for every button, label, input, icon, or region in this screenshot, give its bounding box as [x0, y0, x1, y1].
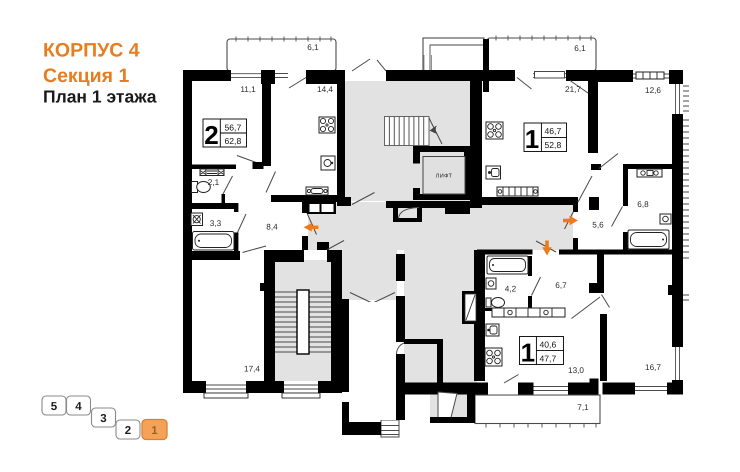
- svg-text:12,6: 12,6: [645, 86, 661, 95]
- svg-text:46,7: 46,7: [545, 126, 562, 136]
- svg-text:2: 2: [125, 425, 131, 437]
- svg-text:62,8: 62,8: [225, 136, 242, 146]
- svg-text:14,4: 14,4: [317, 85, 333, 94]
- svg-text:1: 1: [525, 124, 539, 154]
- svg-text:13,0: 13,0: [568, 366, 584, 375]
- svg-text:56,7: 56,7: [225, 123, 242, 133]
- svg-text:КОРПУС 4: КОРПУС 4: [43, 40, 140, 62]
- svg-text:17,4: 17,4: [244, 365, 260, 374]
- svg-text:52,8: 52,8: [545, 140, 562, 150]
- svg-text:7,1: 7,1: [577, 403, 589, 412]
- svg-text:Секция 1: Секция 1: [43, 65, 129, 87]
- svg-text:5,6: 5,6: [592, 221, 604, 230]
- svg-text:8,4: 8,4: [266, 223, 278, 232]
- svg-text:ЛИФТ: ЛИФТ: [436, 174, 453, 180]
- svg-text:6,8: 6,8: [637, 200, 649, 209]
- svg-text:6,1: 6,1: [307, 43, 319, 52]
- svg-text:11,1: 11,1: [240, 85, 256, 94]
- svg-text:6,1: 6,1: [574, 44, 586, 53]
- svg-text:40,6: 40,6: [540, 340, 557, 350]
- svg-text:6,7: 6,7: [555, 281, 567, 290]
- svg-text:2: 2: [204, 120, 218, 150]
- svg-text:3: 3: [100, 413, 106, 425]
- svg-text:План 1 этажа: План 1 этажа: [43, 87, 157, 107]
- svg-text:1: 1: [521, 338, 535, 368]
- svg-text:47,7: 47,7: [540, 354, 557, 364]
- svg-text:21,7: 21,7: [565, 85, 581, 94]
- svg-text:4: 4: [75, 401, 82, 413]
- svg-text:1: 1: [151, 425, 158, 437]
- svg-text:2,1: 2,1: [208, 178, 220, 187]
- svg-text:4,2: 4,2: [505, 285, 517, 294]
- svg-text:5: 5: [51, 401, 58, 413]
- svg-text:16,7: 16,7: [645, 363, 661, 372]
- svg-text:3,3: 3,3: [210, 219, 222, 228]
